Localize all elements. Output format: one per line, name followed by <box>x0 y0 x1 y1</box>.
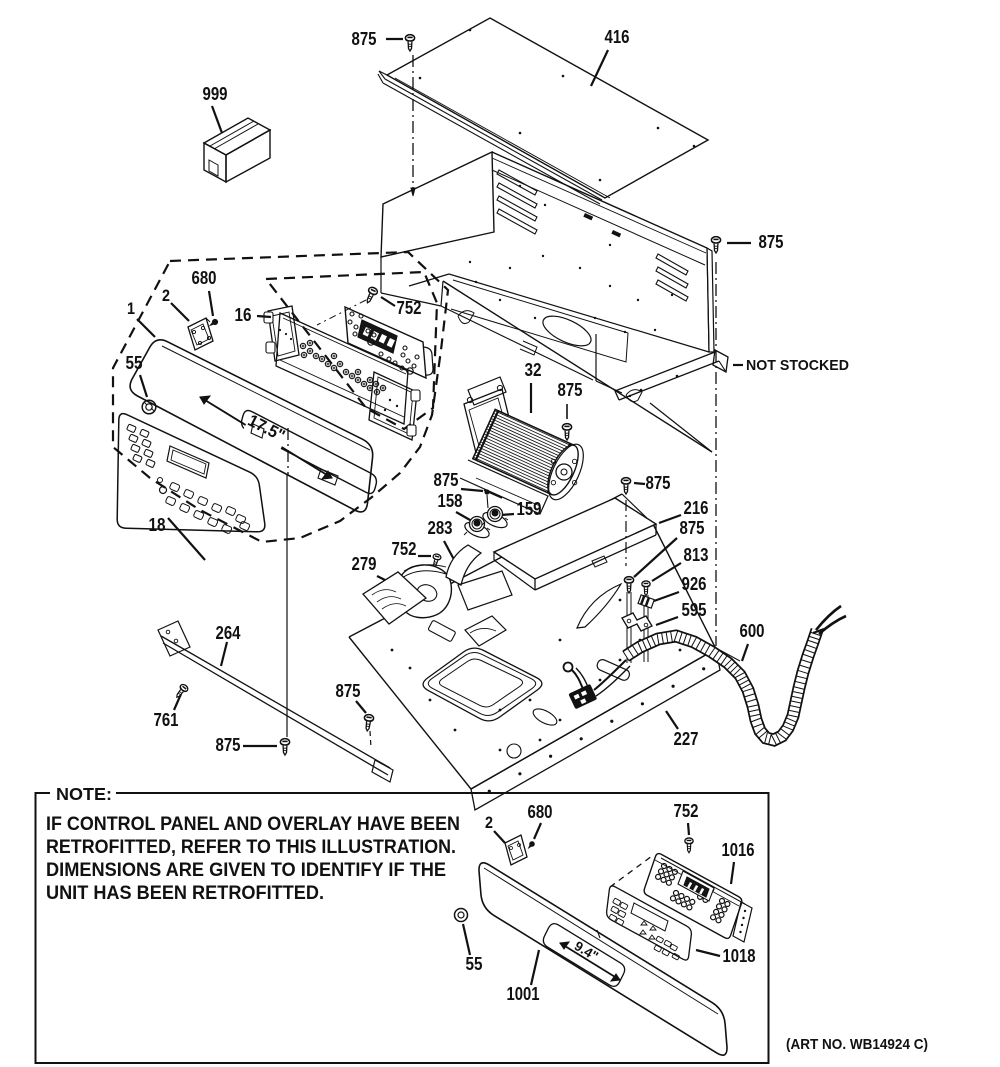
svg-text:NOTE:: NOTE: <box>56 784 112 804</box>
svg-text:752: 752 <box>397 298 422 318</box>
svg-text:752: 752 <box>674 801 699 821</box>
svg-text:875: 875 <box>352 29 377 49</box>
svg-text:55: 55 <box>466 954 483 974</box>
svg-text:680: 680 <box>528 802 553 822</box>
svg-text:2: 2 <box>162 286 170 305</box>
svg-text:283: 283 <box>428 518 453 538</box>
svg-text:875: 875 <box>558 380 583 400</box>
svg-text:416: 416 <box>605 27 630 47</box>
svg-text:264: 264 <box>216 623 241 643</box>
svg-text:999: 999 <box>203 84 228 104</box>
svg-text:159: 159 <box>517 499 542 519</box>
svg-text:16: 16 <box>235 305 252 325</box>
svg-text:595: 595 <box>682 600 707 620</box>
svg-text:875: 875 <box>680 518 705 538</box>
svg-text:875: 875 <box>434 470 459 490</box>
svg-text:18: 18 <box>149 515 166 535</box>
svg-text:1018: 1018 <box>723 946 756 966</box>
svg-text:680: 680 <box>192 268 217 288</box>
svg-text:216: 216 <box>684 498 709 518</box>
svg-text:IF CONTROL PANEL AND OVERLAY H: IF CONTROL PANEL AND OVERLAY HAVE BEEN <box>46 813 460 835</box>
svg-text:DIMENSIONS ARE GIVEN TO IDENTI: DIMENSIONS ARE GIVEN TO IDENTIFY IF THE <box>46 859 446 881</box>
svg-text:1001: 1001 <box>507 984 540 1004</box>
svg-text:926: 926 <box>682 574 707 594</box>
svg-text:600: 600 <box>740 621 765 641</box>
svg-text:UNIT HAS BEEN RETROFITTED.: UNIT HAS BEEN RETROFITTED. <box>46 882 324 904</box>
svg-text:227: 227 <box>674 729 699 749</box>
svg-text:875: 875 <box>759 232 784 252</box>
svg-text:875: 875 <box>646 473 671 493</box>
svg-text:1: 1 <box>127 299 135 318</box>
svg-text:279: 279 <box>352 554 377 574</box>
svg-text:875: 875 <box>336 681 361 701</box>
svg-text:55: 55 <box>126 353 143 373</box>
svg-text:752: 752 <box>392 539 417 559</box>
svg-text:RETROFITTED, REFER TO THIS ILL: RETROFITTED, REFER TO THIS ILLUSTRATION. <box>46 836 456 858</box>
svg-text:158: 158 <box>438 491 463 511</box>
svg-text:761: 761 <box>154 710 179 730</box>
svg-text:(ART NO. WB14924 C): (ART NO. WB14924 C) <box>786 1036 928 1053</box>
svg-text:32: 32 <box>525 360 542 380</box>
svg-text:NOT STOCKED: NOT STOCKED <box>746 357 849 374</box>
svg-text:813: 813 <box>684 545 709 565</box>
svg-text:875: 875 <box>216 735 241 755</box>
svg-text:1016: 1016 <box>722 840 755 860</box>
svg-text:2: 2 <box>485 813 493 832</box>
